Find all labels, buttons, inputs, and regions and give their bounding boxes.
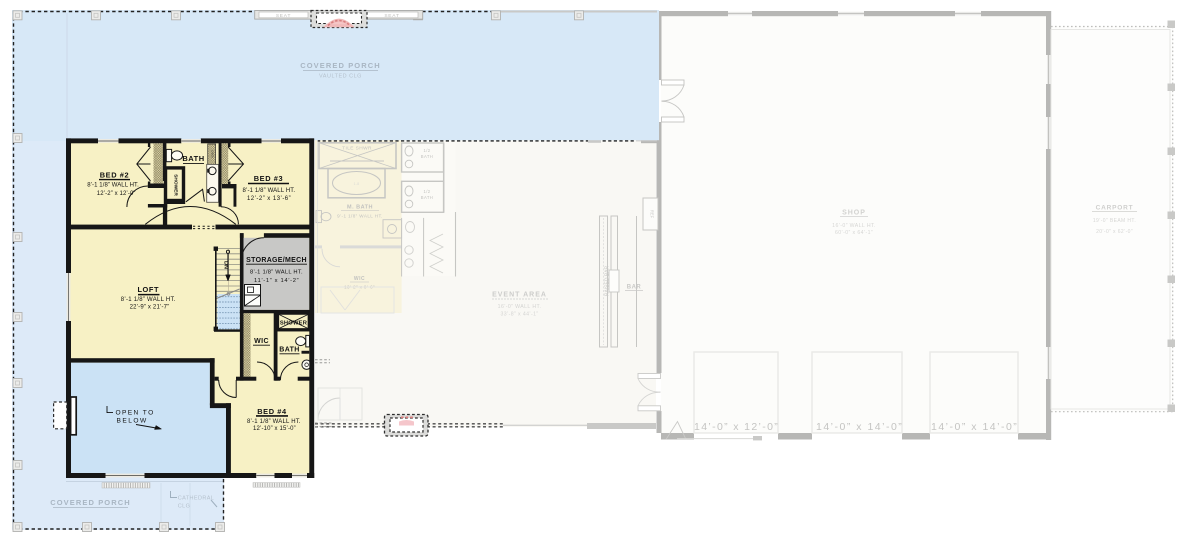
svg-text:BELOW: BELOW bbox=[117, 418, 147, 425]
svg-text:9’-1 1/8” WALL HT.: 9’-1 1/8” WALL HT. bbox=[337, 214, 383, 219]
svg-text:BED #3: BED #3 bbox=[254, 174, 283, 183]
svg-text:8’-1 1/8” WALL HT.: 8’-1 1/8” WALL HT. bbox=[87, 183, 139, 189]
svg-text:LOFT: LOFT bbox=[137, 285, 159, 294]
svg-text:TILE SHWR: TILE SHWR bbox=[342, 146, 372, 152]
svg-text:VAULTED CLG: VAULTED CLG bbox=[319, 74, 362, 80]
svg-text:33’-8” x 44’-1”: 33’-8” x 44’-1” bbox=[500, 312, 538, 318]
svg-text:WIC: WIC bbox=[254, 338, 269, 345]
svg-text:11’-1” x 14’-2”: 11’-1” x 14’-2” bbox=[254, 278, 299, 284]
svg-text:REF: REF bbox=[650, 210, 655, 219]
svg-text:M. BATH: M. BATH bbox=[347, 205, 373, 211]
svg-text:STORAGE/MECH: STORAGE/MECH bbox=[246, 257, 307, 264]
svg-text:1/2: 1/2 bbox=[423, 189, 430, 194]
svg-text:60’-0” x 64’-1”: 60’-0” x 64’-1” bbox=[835, 230, 873, 236]
svg-text:COVERED PORCH: COVERED PORCH bbox=[50, 498, 131, 507]
svg-text:OPEN TO: OPEN TO bbox=[116, 410, 154, 417]
svg-text:BATH: BATH bbox=[421, 195, 433, 200]
svg-text:12’-10” x 15’-0”: 12’-10” x 15’-0” bbox=[253, 426, 296, 432]
svg-text:BATH: BATH bbox=[421, 154, 433, 159]
svg-text:14’-0” x 12’-0”: 14’-0” x 12’-0” bbox=[694, 421, 778, 433]
svg-text:19’-0” BEAM HT.: 19’-0” BEAM HT. bbox=[1093, 218, 1136, 224]
svg-text:CARPORT: CARPORT bbox=[1096, 205, 1134, 212]
svg-text:LINEN: LINEN bbox=[211, 150, 215, 158]
svg-text:EVENT AREA: EVENT AREA bbox=[492, 292, 547, 299]
svg-text:8’-1 1/8” WALL HT.: 8’-1 1/8” WALL HT. bbox=[243, 188, 296, 194]
svg-text:12’-2” x 13’-6”: 12’-2” x 13’-6” bbox=[247, 196, 291, 202]
svg-text:COVERED PORCH: COVERED PORCH bbox=[300, 61, 381, 70]
svg-text:BATH: BATH bbox=[182, 154, 204, 163]
svg-text:BAR: BAR bbox=[627, 285, 642, 291]
svg-text:16’-0” WALL HT.: 16’-0” WALL HT. bbox=[832, 223, 876, 229]
svg-text:CATHEDRAL: CATHEDRAL bbox=[178, 496, 215, 502]
svg-text:SHOP: SHOP bbox=[842, 210, 866, 217]
svg-text:1/2: 1/2 bbox=[423, 148, 430, 153]
svg-text:SHOWER: SHOWER bbox=[173, 174, 179, 196]
svg-text:20’-0” x 62’-0”: 20’-0” x 62’-0” bbox=[1096, 229, 1133, 235]
svg-text:SEAT: SEAT bbox=[384, 13, 399, 19]
svg-text:BATH: BATH bbox=[279, 347, 300, 354]
svg-text:14’-0” x 14’-0”: 14’-0” x 14’-0” bbox=[931, 421, 1017, 433]
svg-text:8’-1 1/8” WALL HT.: 8’-1 1/8” WALL HT. bbox=[121, 297, 176, 303]
svg-text:16’-0” WALL HT.: 16’-0” WALL HT. bbox=[498, 304, 542, 310]
svg-text:14’-0” x 14’-0”: 14’-0” x 14’-0” bbox=[816, 421, 902, 433]
svg-text:WIC: WIC bbox=[354, 276, 365, 282]
svg-text:SHOWER: SHOWER bbox=[280, 321, 308, 327]
svg-text:CLG: CLG bbox=[178, 504, 191, 510]
svg-text:22’-9” x 21’-7”: 22’-9” x 21’-7” bbox=[130, 305, 170, 311]
svg-text:8’-1 1/8” WALL HT.: 8’-1 1/8” WALL HT. bbox=[250, 270, 303, 276]
svg-text:BED #2: BED #2 bbox=[100, 171, 129, 180]
svg-text:8’-1 1/8” WALL HT.: 8’-1 1/8” WALL HT. bbox=[247, 419, 301, 425]
svg-text:BED #4: BED #4 bbox=[257, 407, 287, 416]
svg-text:SEAT: SEAT bbox=[276, 13, 291, 19]
svg-text:1-8: 1-8 bbox=[354, 182, 360, 186]
